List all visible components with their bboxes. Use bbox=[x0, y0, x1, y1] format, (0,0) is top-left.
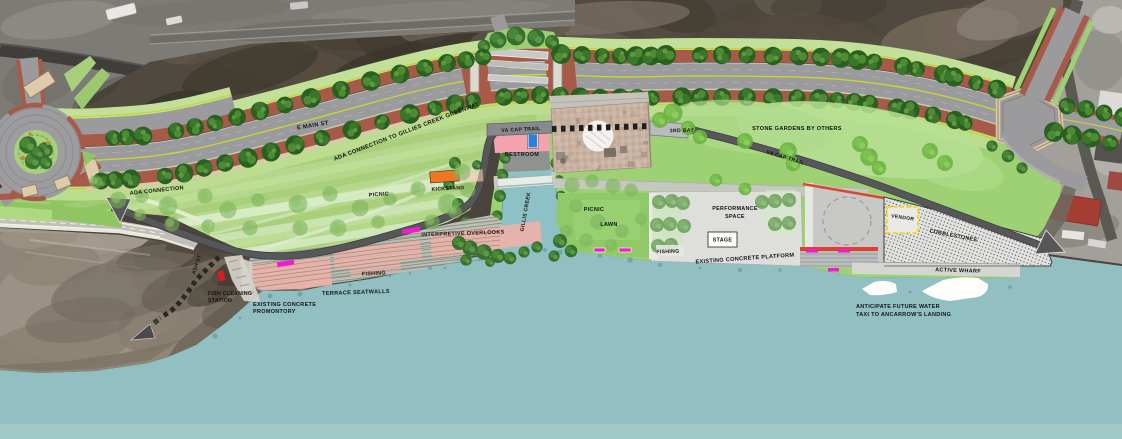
svg-text:FISHING: FISHING bbox=[362, 270, 386, 277]
svg-text:LAWN: LAWN bbox=[600, 222, 617, 228]
svg-text:PROMONTORY: PROMONTORY bbox=[253, 309, 296, 315]
svg-text:STAGE: STAGE bbox=[713, 238, 733, 244]
svg-text:STATION: STATION bbox=[208, 298, 232, 304]
svg-text:STONE GARDENS BY OTHERS: STONE GARDENS BY OTHERS bbox=[752, 126, 842, 132]
svg-text:RESTROOM: RESTROOM bbox=[505, 152, 539, 158]
svg-text:TAXI TO ANCARROW'S LANDING: TAXI TO ANCARROW'S LANDING bbox=[856, 312, 951, 318]
svg-text:EXISTING CONCRETE: EXISTING CONCRETE bbox=[253, 302, 316, 308]
svg-text:FISHING: FISHING bbox=[656, 249, 679, 256]
svg-text:ANTICIPATE FUTURE WATER: ANTICIPATE FUTURE WATER bbox=[856, 304, 940, 310]
svg-text:PERFORMANCE: PERFORMANCE bbox=[712, 206, 758, 212]
svg-text:3RD BAY: 3RD BAY bbox=[670, 128, 695, 135]
svg-text:SPACE: SPACE bbox=[725, 214, 745, 220]
svg-text:PICNIC: PICNIC bbox=[584, 207, 604, 213]
svg-text:FISH CLEANING: FISH CLEANING bbox=[208, 291, 252, 297]
